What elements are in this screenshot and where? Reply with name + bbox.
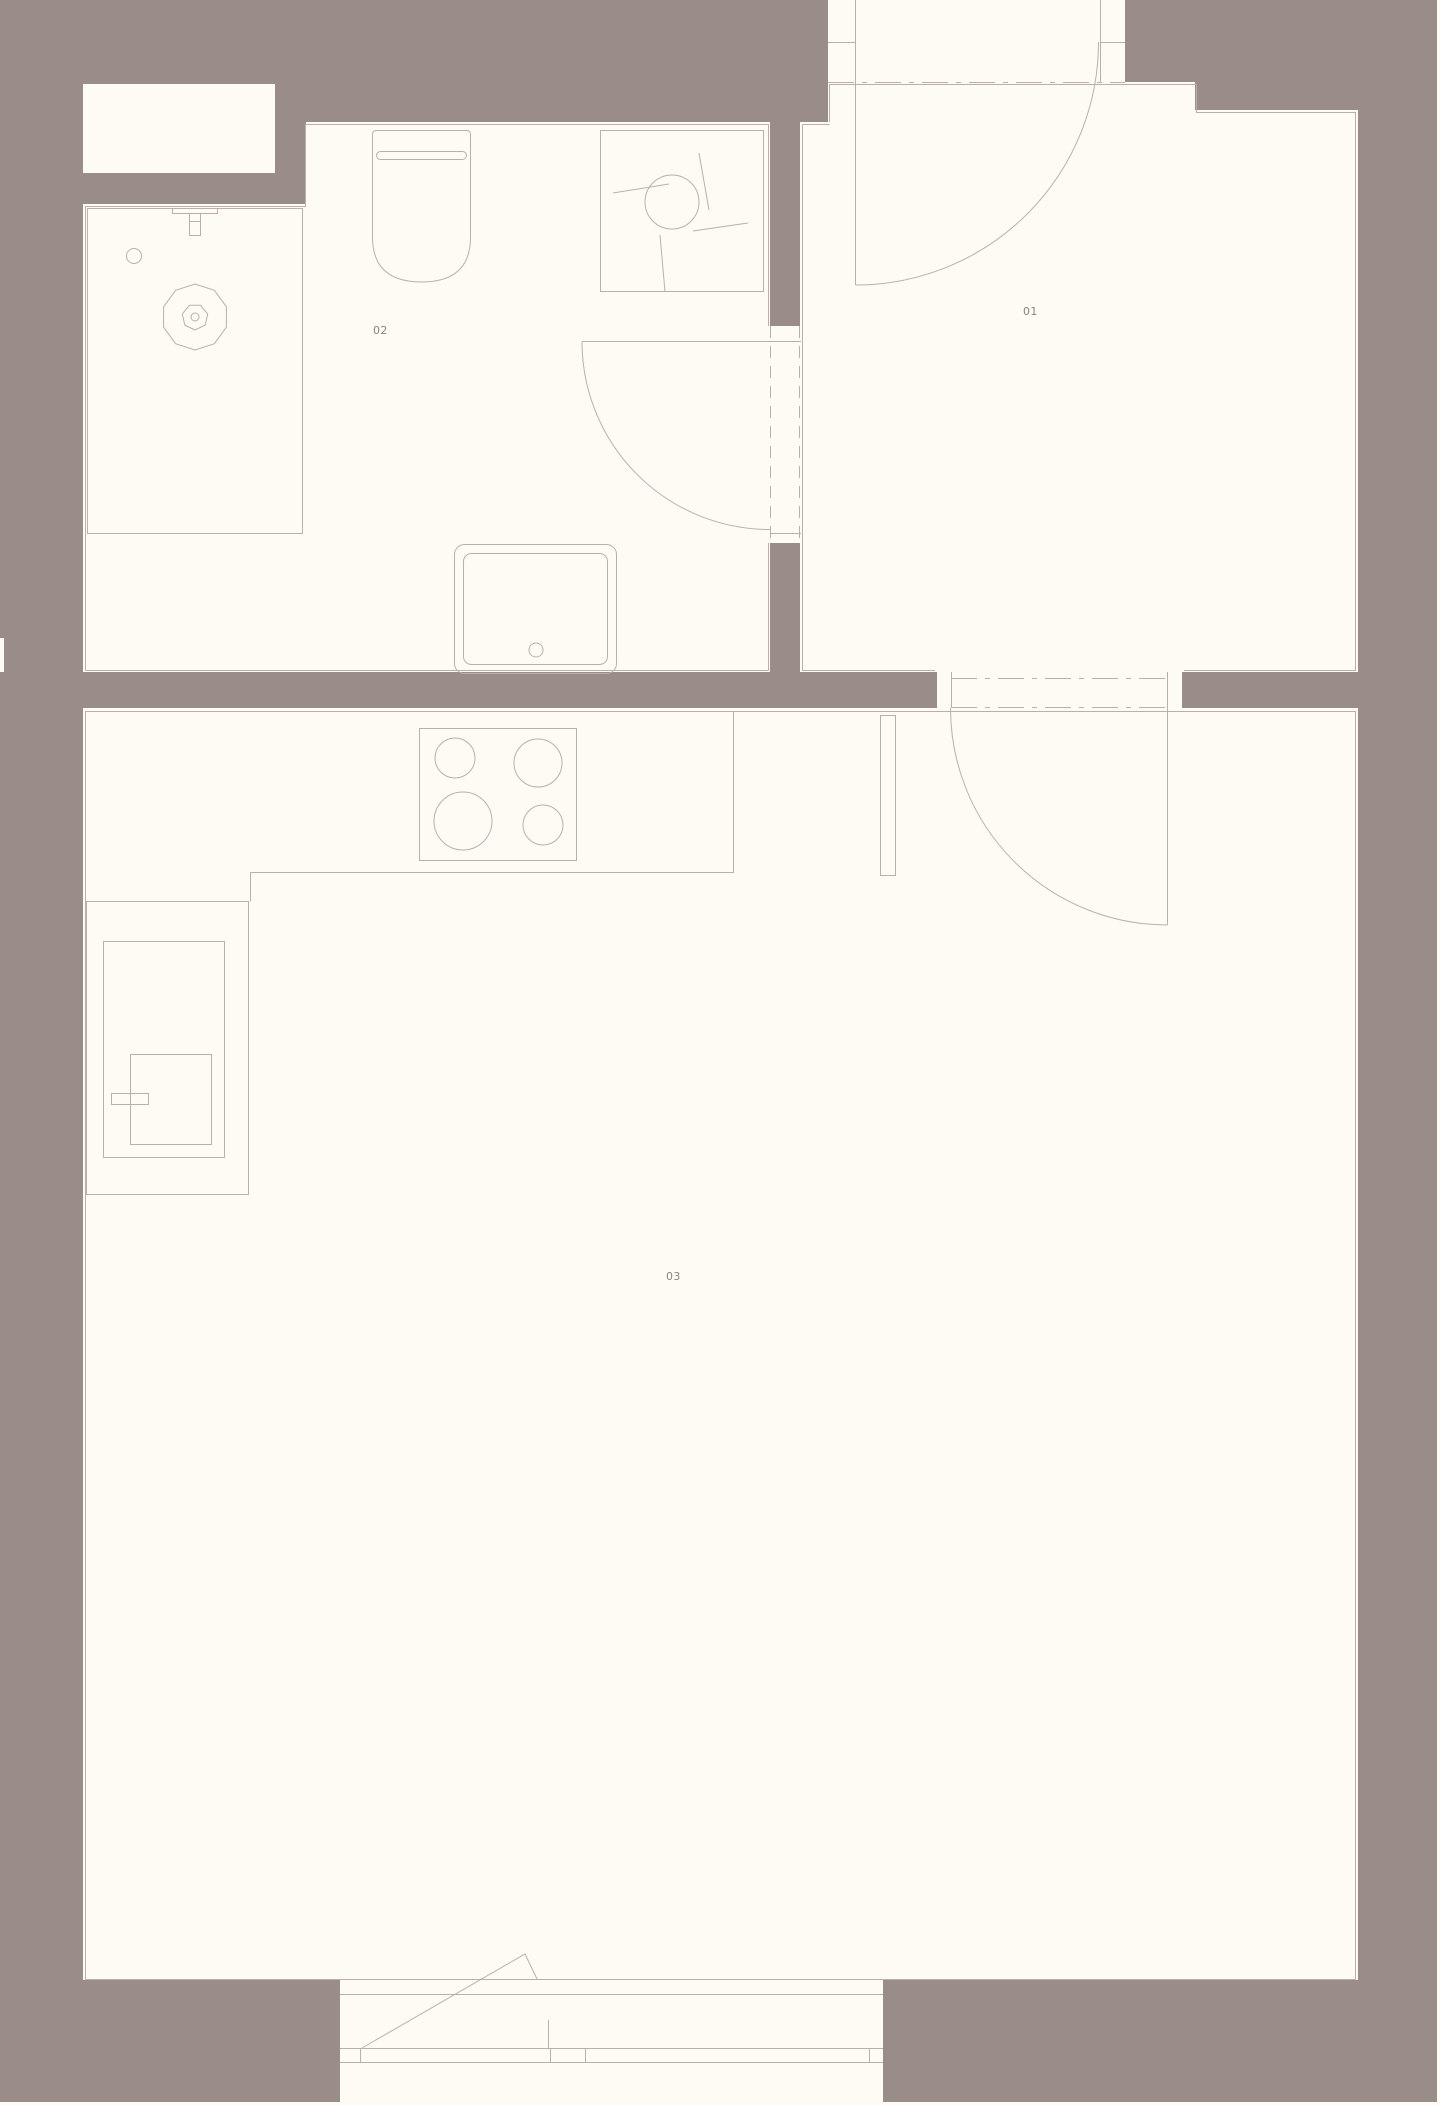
room01-floor — [800, 82, 1358, 672]
room-label-03: 03 — [666, 1271, 681, 1282]
wall-niche — [83, 84, 275, 173]
floor-plan: 01 02 03 — [0, 0, 1440, 2105]
bathroom-door-opening — [770, 326, 800, 543]
bathroom-floor — [83, 122, 770, 672]
wall-notch — [0, 638, 4, 672]
plan-drawing — [0, 0, 1440, 2105]
entrance-opening — [828, 0, 1125, 82]
room03-floor — [83, 708, 1358, 1980]
terrace-threshold — [340, 1980, 883, 2102]
room-label-01: 01 — [1023, 306, 1038, 317]
floor-areas — [0, 0, 1440, 2105]
room01-room03-opening — [937, 672, 1182, 708]
room-label-02: 02 — [373, 325, 388, 336]
